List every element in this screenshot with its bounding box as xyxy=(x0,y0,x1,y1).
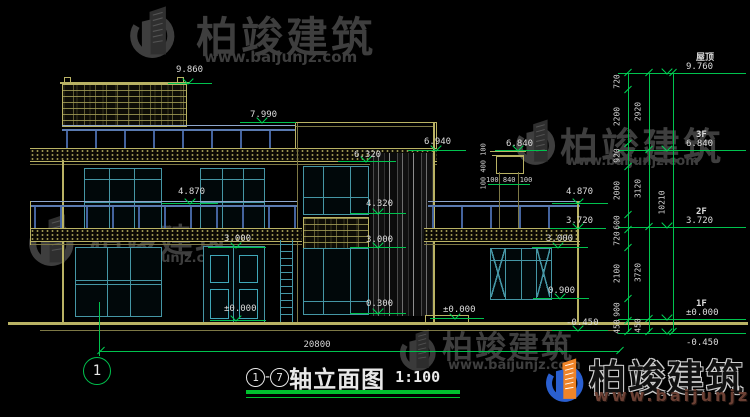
railing-post xyxy=(153,131,155,148)
cad-elevation-drawing: 柏竣建筑 www.baijunjz.com 柏竣建筑 www.baijunjz.… xyxy=(0,0,750,417)
watermark-url: www.baijunjz.com xyxy=(204,48,357,66)
level-line xyxy=(240,122,296,123)
railing-post xyxy=(461,207,463,228)
ladder-rung xyxy=(280,307,293,308)
ladder-rung xyxy=(280,258,293,259)
railing-post xyxy=(190,207,192,228)
level-line xyxy=(552,203,608,204)
level-line xyxy=(552,330,608,331)
tower-post xyxy=(64,77,71,84)
title-axis-end: 7 xyxy=(270,368,289,387)
dim-chain-line xyxy=(628,73,629,332)
railing-post xyxy=(268,207,270,228)
overall-dim-line xyxy=(100,351,620,352)
railing-post xyxy=(124,131,126,148)
railing-post xyxy=(242,207,244,228)
balcony-edge xyxy=(30,201,31,245)
window-1f-wing xyxy=(490,248,552,300)
floor-elevation: ±0.000 xyxy=(686,308,719,318)
balcony-slab xyxy=(30,228,302,242)
roof-parapet-line xyxy=(296,126,434,127)
railing-post xyxy=(216,207,218,228)
ladder-rung xyxy=(280,293,293,294)
railing-post xyxy=(519,207,521,228)
floor-elevation: 9.760 xyxy=(686,62,713,72)
ladder-rung xyxy=(280,286,293,287)
watermark-logo xyxy=(124,2,186,62)
railing-post xyxy=(211,131,213,148)
ladder-rung xyxy=(280,279,293,280)
ladder xyxy=(280,240,293,322)
dim-chain-line xyxy=(673,73,674,332)
column-level-line xyxy=(618,73,746,74)
brick-band-center xyxy=(303,217,369,249)
title-axis-start: 1 xyxy=(246,368,265,387)
axis-bubble-1: 1 xyxy=(83,357,111,385)
ladder-rung xyxy=(280,265,293,266)
dim-chain-text: 2200 xyxy=(613,95,622,139)
railing-post xyxy=(60,207,62,228)
dim-chain-text: 450 xyxy=(613,304,622,348)
window-2f-left2 xyxy=(200,168,265,232)
dim-chain-line xyxy=(649,73,650,332)
title-underline xyxy=(246,390,460,394)
floor-elevation: 6.840 xyxy=(686,139,713,149)
column-level-line xyxy=(618,227,746,228)
ladder-rung xyxy=(280,272,293,273)
dim-chain-text: 3720 xyxy=(634,251,643,295)
roof-railing-top xyxy=(62,125,295,126)
level-line xyxy=(168,83,212,84)
drawing-title: 1-7轴立面图1:100 xyxy=(246,360,440,394)
railing-post xyxy=(490,207,492,228)
dim-chain-text: 2920 xyxy=(634,89,643,133)
title-scale: 1:100 xyxy=(395,368,440,386)
block-joint-line xyxy=(297,123,298,322)
balcony-railing-top xyxy=(30,201,297,202)
railing-post xyxy=(138,207,140,228)
floor-elevation: -0.450 xyxy=(686,338,719,348)
foundation-line xyxy=(40,330,620,331)
chimney-body xyxy=(496,156,524,174)
chimney-cap xyxy=(490,151,526,152)
title-underline-2 xyxy=(246,397,460,398)
railing-post xyxy=(164,207,166,228)
railing-post xyxy=(182,131,184,148)
level-line xyxy=(210,320,266,321)
railing-post xyxy=(112,207,114,228)
dim-chain-text: 3120 xyxy=(634,166,643,210)
level-line xyxy=(430,318,484,319)
ladder-rung xyxy=(280,244,293,245)
dim-chain-text: 450 xyxy=(634,303,643,347)
brand-logo-url: www.baijunjz.com xyxy=(594,386,750,405)
ladder-rung xyxy=(280,314,293,315)
wing-railing-top xyxy=(428,201,580,202)
level-line xyxy=(495,150,547,151)
railing-post xyxy=(294,207,296,228)
window-1f-center xyxy=(303,248,369,315)
level-text: 9.860 xyxy=(176,65,203,75)
brand-logo xyxy=(544,347,590,413)
floor-elevation: 3.720 xyxy=(686,216,713,226)
window-2f-center xyxy=(303,166,369,215)
balcony-soffit xyxy=(30,244,302,245)
railing-post xyxy=(240,131,242,148)
brick-stair-tower xyxy=(62,84,187,127)
level-line xyxy=(532,247,588,248)
wing-railing-rail xyxy=(428,205,580,207)
overall-dim-text: 20800 xyxy=(295,341,339,350)
dim-chain-text: 10210 xyxy=(658,180,667,224)
railing-post xyxy=(34,207,36,228)
ladder-rung xyxy=(280,300,293,301)
railing-post xyxy=(269,131,271,148)
column-level-line xyxy=(618,150,746,151)
level-text: ±0.000 xyxy=(224,304,257,314)
railing-post xyxy=(95,131,97,148)
window-2f-left xyxy=(84,168,162,232)
watermark-url: www.baijunjz.com xyxy=(566,154,699,169)
railing-post xyxy=(548,207,550,228)
axis-line xyxy=(99,302,100,356)
railing-post xyxy=(66,131,68,148)
chimney-dim-line xyxy=(488,184,530,185)
railing-post xyxy=(432,207,434,228)
railing-post xyxy=(86,207,88,228)
ladder-rung xyxy=(280,251,293,252)
window-1f-left xyxy=(75,247,162,317)
